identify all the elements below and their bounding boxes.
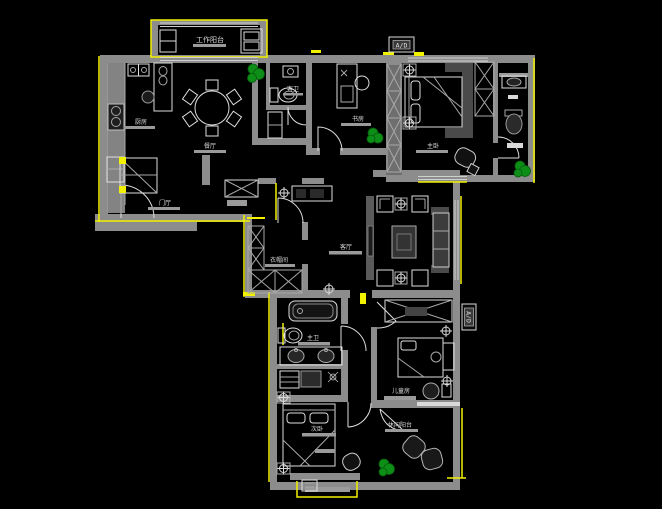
section-label-top: A/D (396, 42, 408, 50)
svg-text:主卫: 主卫 (307, 334, 319, 342)
svg-text:客厅: 客厅 (340, 243, 352, 251)
svg-text:儿童房: 儿童房 (392, 387, 410, 395)
room-label-work-balcony: 工作阳台 (193, 35, 226, 47)
kids-window (417, 402, 460, 406)
svg-text:工作阳台: 工作阳台 (196, 35, 224, 44)
svg-text:书房: 书房 (352, 115, 364, 123)
svg-text:门厅: 门厅 (159, 199, 171, 207)
svg-text:次卧: 次卧 (311, 425, 323, 433)
section-marker-top: A/D (389, 37, 414, 52)
floorplan-canvas[interactable]: A/D A/D 工作阳台 厨房 餐厅 门厅 客卫 书房 (0, 0, 662, 509)
svg-text:客卫: 客卫 (287, 85, 299, 93)
svg-text:厨房: 厨房 (135, 118, 147, 126)
section-marker-right: A/D (462, 304, 476, 330)
cad-viewport: A/D A/D 工作阳台 厨房 餐厅 门厅 客卫 书房 (0, 0, 662, 509)
section-label-right: A/D (465, 311, 473, 323)
svg-text:餐厅: 餐厅 (204, 142, 216, 150)
svg-text:主卧: 主卧 (427, 142, 439, 150)
svg-text:衣帽间: 衣帽间 (270, 256, 288, 264)
svg-text:休闲阳台: 休闲阳台 (388, 421, 412, 429)
